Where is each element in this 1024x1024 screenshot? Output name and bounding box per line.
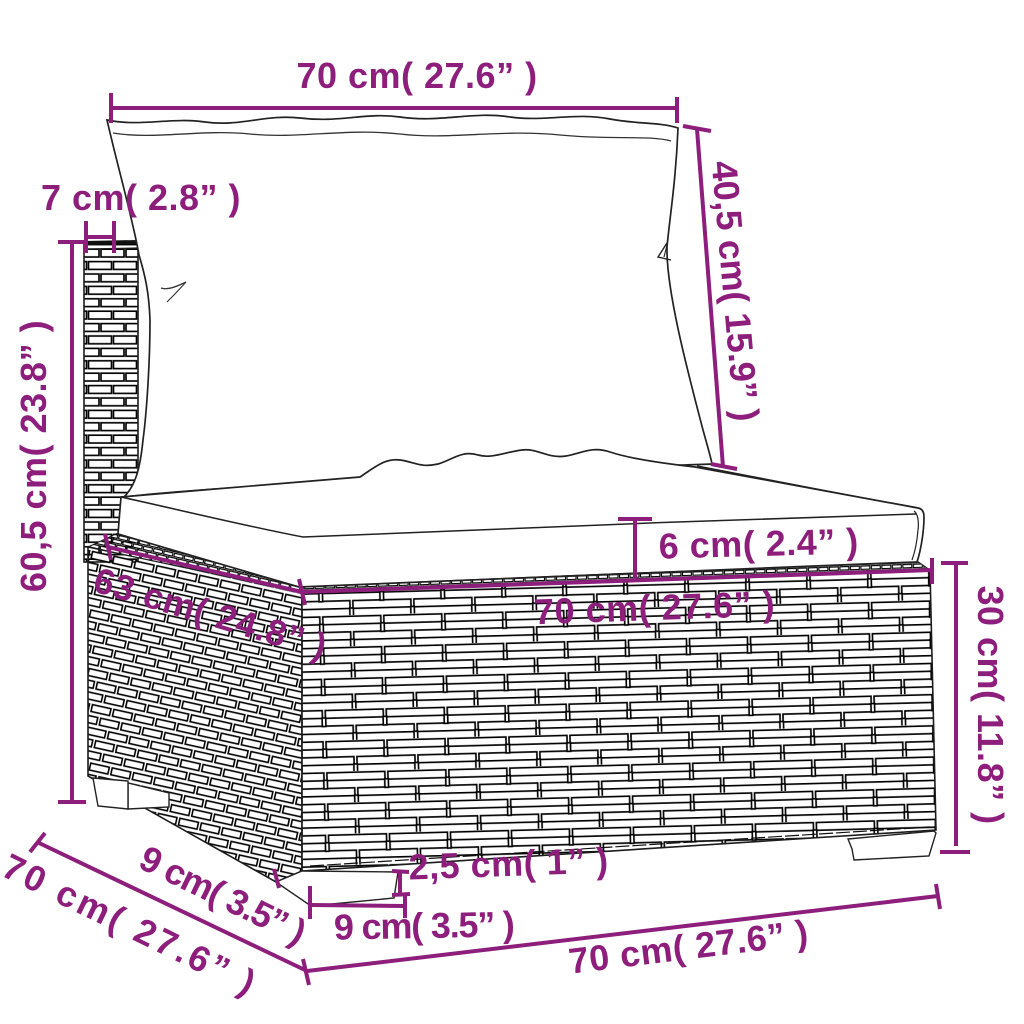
svg-text:2,5 cm( 1” ): 2,5 cm( 1” ): [408, 840, 609, 888]
svg-text:70 cm( 27.6” ): 70 cm( 27.6” ): [533, 583, 775, 632]
svg-text:70 cm( 27.6” ): 70 cm( 27.6” ): [296, 55, 537, 96]
svg-text:60,5 cm( 23.8” ): 60,5 cm( 23.8” ): [13, 320, 54, 592]
svg-text:6 cm( 2.4” ): 6 cm( 2.4” ): [658, 520, 859, 566]
svg-text:9 cm( 3.5” ): 9 cm( 3.5” ): [334, 903, 515, 947]
svg-text:30 cm( 11.8” ): 30 cm( 11.8” ): [970, 585, 1011, 824]
svg-text:7 cm( 2.8” ): 7 cm( 2.8” ): [41, 177, 241, 218]
